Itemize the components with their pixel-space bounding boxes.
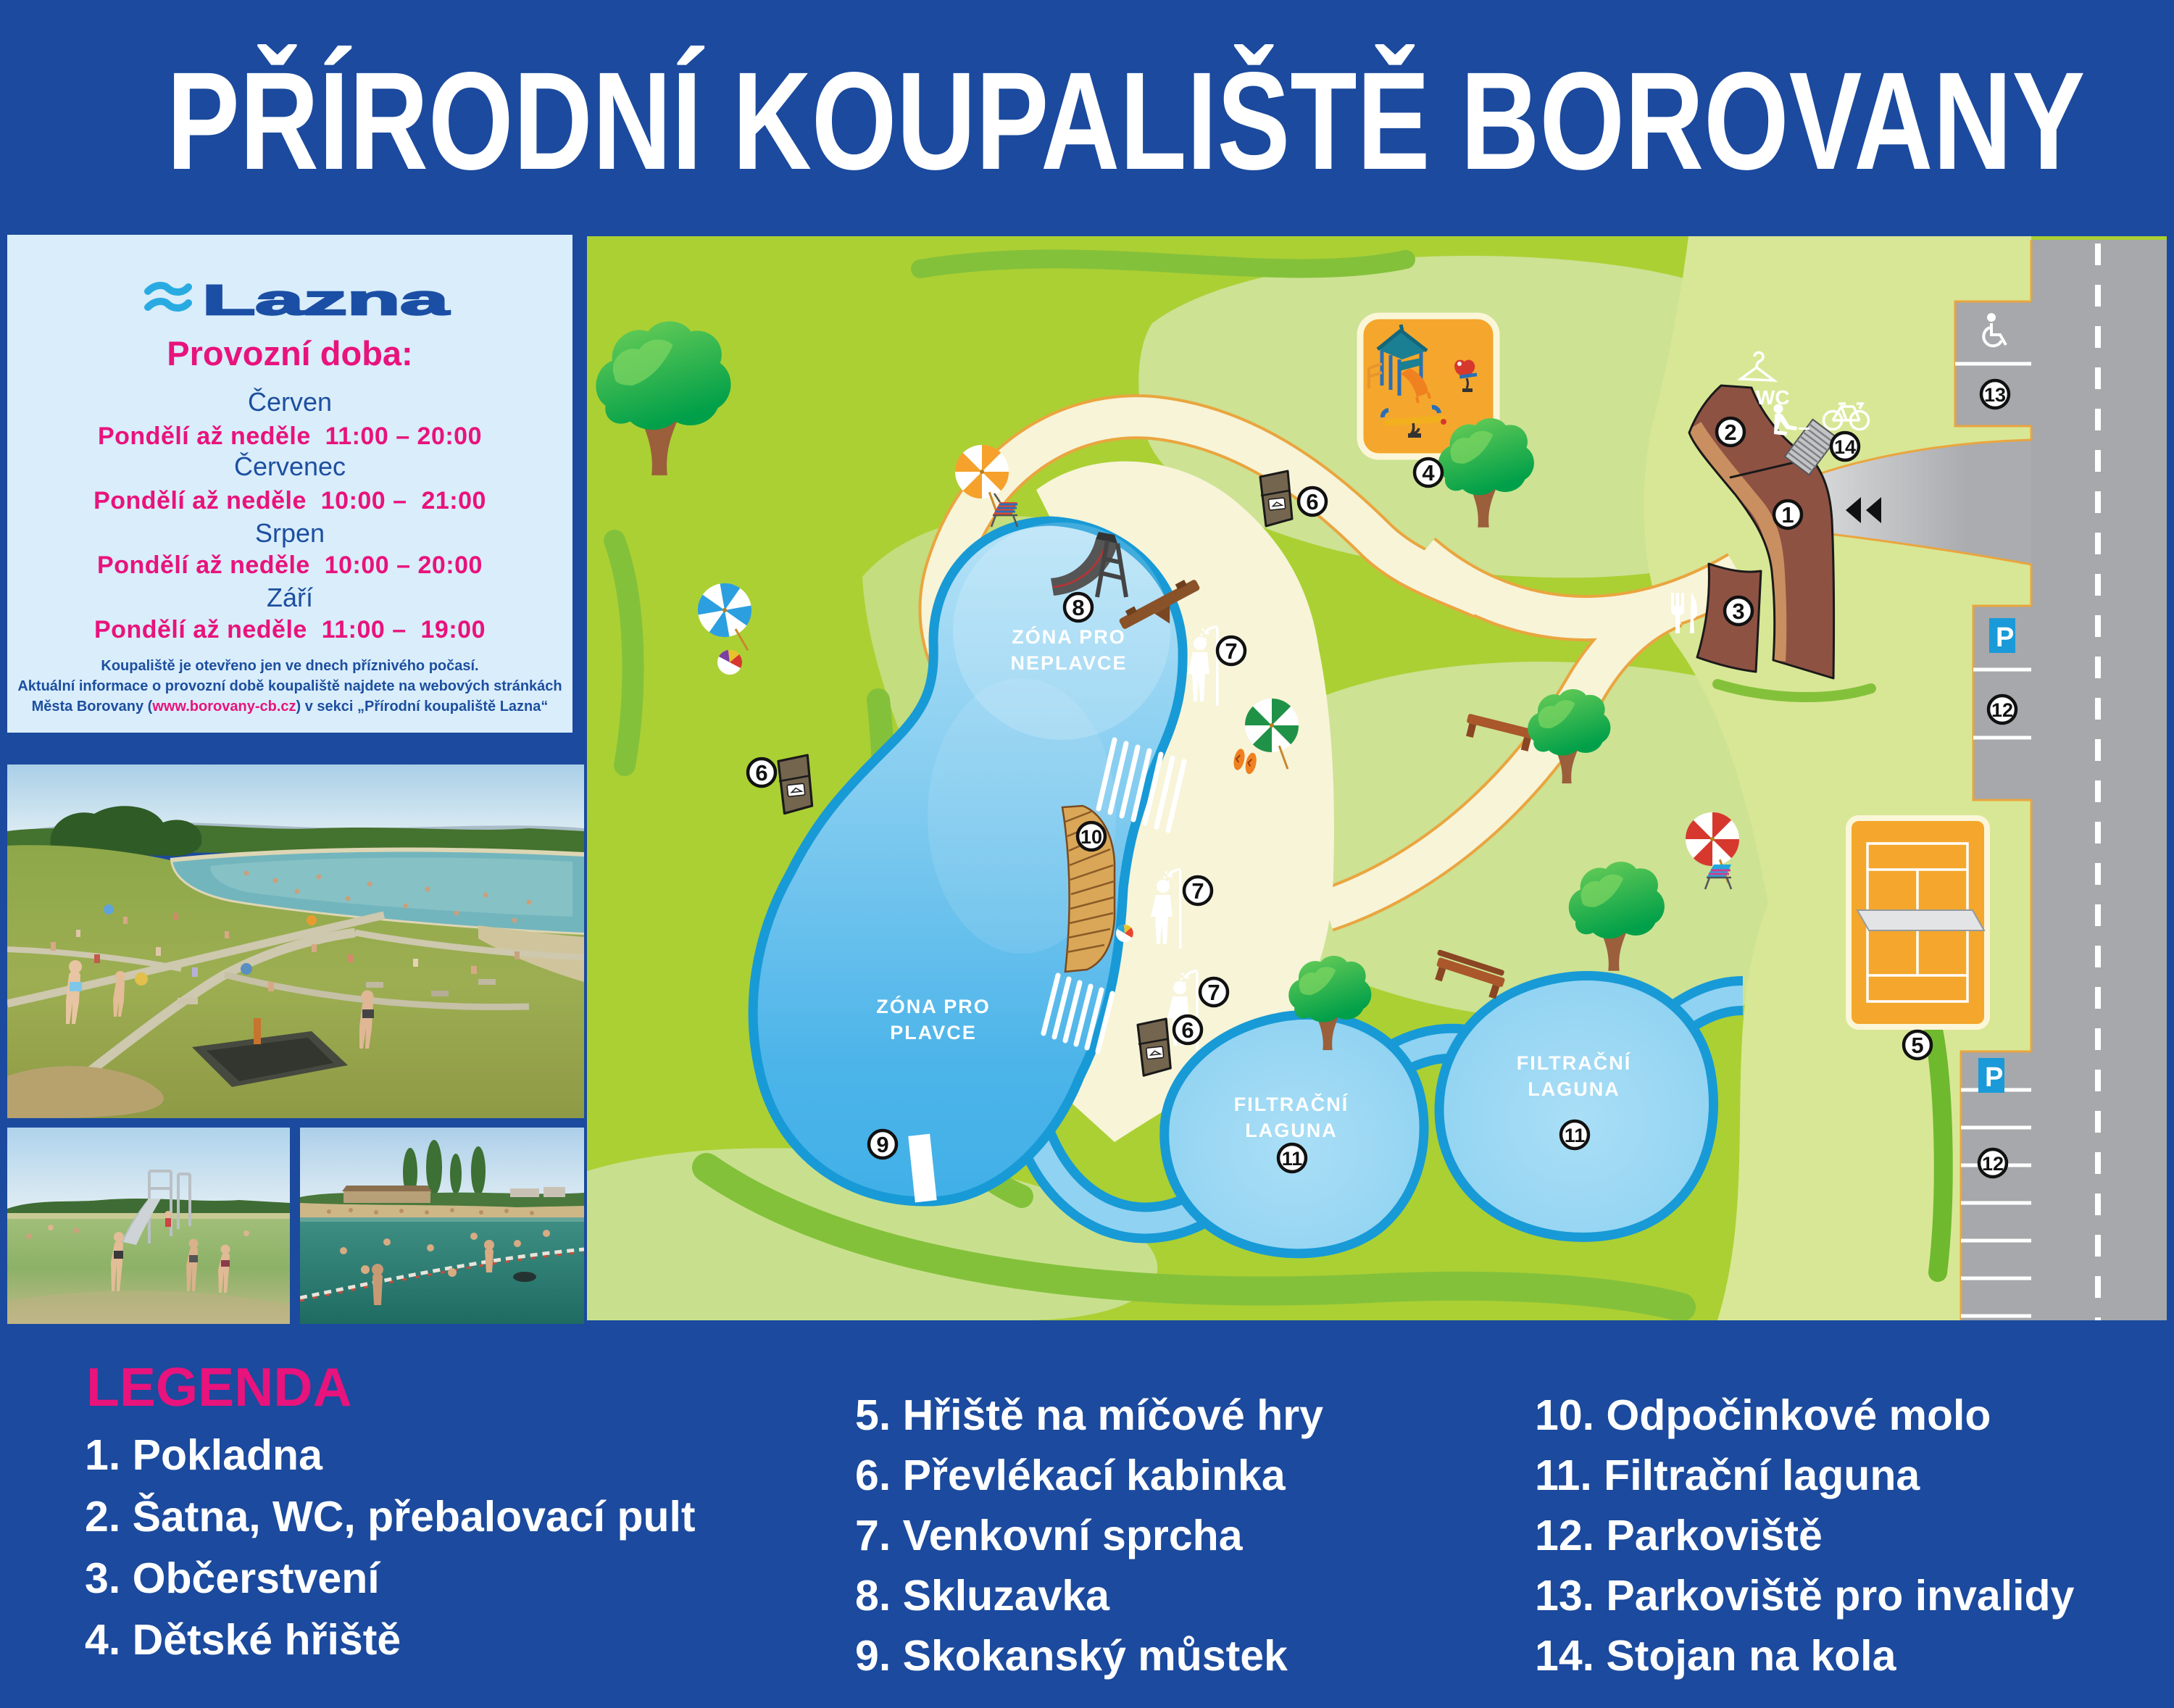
svg-text:12: 12 <box>1991 699 2013 721</box>
svg-text:FILTRAČNÍ: FILTRAČNÍ <box>1234 1093 1349 1115</box>
svg-text:7: 7 <box>1207 980 1220 1005</box>
svg-text:6: 6 <box>1181 1017 1194 1043</box>
svg-text:LAGUNA: LAGUNA <box>1528 1078 1620 1100</box>
svg-text:1: 1 <box>1781 502 1794 528</box>
svg-text:3: 3 <box>1732 599 1744 624</box>
svg-text:ZÓNA PRO: ZÓNA PRO <box>876 995 991 1017</box>
svg-text:13: 13 <box>1984 384 2006 406</box>
svg-text:ZÓNA PRO: ZÓNA PRO <box>1012 625 1126 648</box>
svg-text:9: 9 <box>876 1132 888 1157</box>
svg-text:6: 6 <box>1306 489 1318 515</box>
svg-text:11: 11 <box>1282 1148 1303 1170</box>
svg-text:Lazna: Lazna <box>202 281 450 319</box>
svg-text:P: P <box>1996 622 2014 653</box>
svg-text:12: 12 <box>1982 1153 2004 1175</box>
svg-text:FILTRAČNÍ: FILTRAČNÍ <box>1517 1051 1631 1074</box>
svg-text:NEPLAVCE: NEPLAVCE <box>1010 652 1127 674</box>
svg-text:14: 14 <box>1834 436 1856 458</box>
svg-text:WC: WC <box>1756 386 1790 409</box>
svg-text:4: 4 <box>1422 460 1435 486</box>
svg-text:PLAVCE: PLAVCE <box>890 1022 977 1043</box>
svg-text:7: 7 <box>1225 638 1237 664</box>
svg-text:P: P <box>1985 1062 2003 1093</box>
svg-text:2: 2 <box>1724 420 1736 445</box>
svg-text:10: 10 <box>1080 826 1102 848</box>
svg-text:7: 7 <box>1191 878 1204 904</box>
svg-text:11: 11 <box>1565 1125 1586 1146</box>
svg-text:LAGUNA: LAGUNA <box>1245 1120 1338 1141</box>
svg-text:5: 5 <box>1911 1033 1923 1058</box>
svg-text:8: 8 <box>1072 595 1084 620</box>
svg-text:6: 6 <box>755 760 767 786</box>
